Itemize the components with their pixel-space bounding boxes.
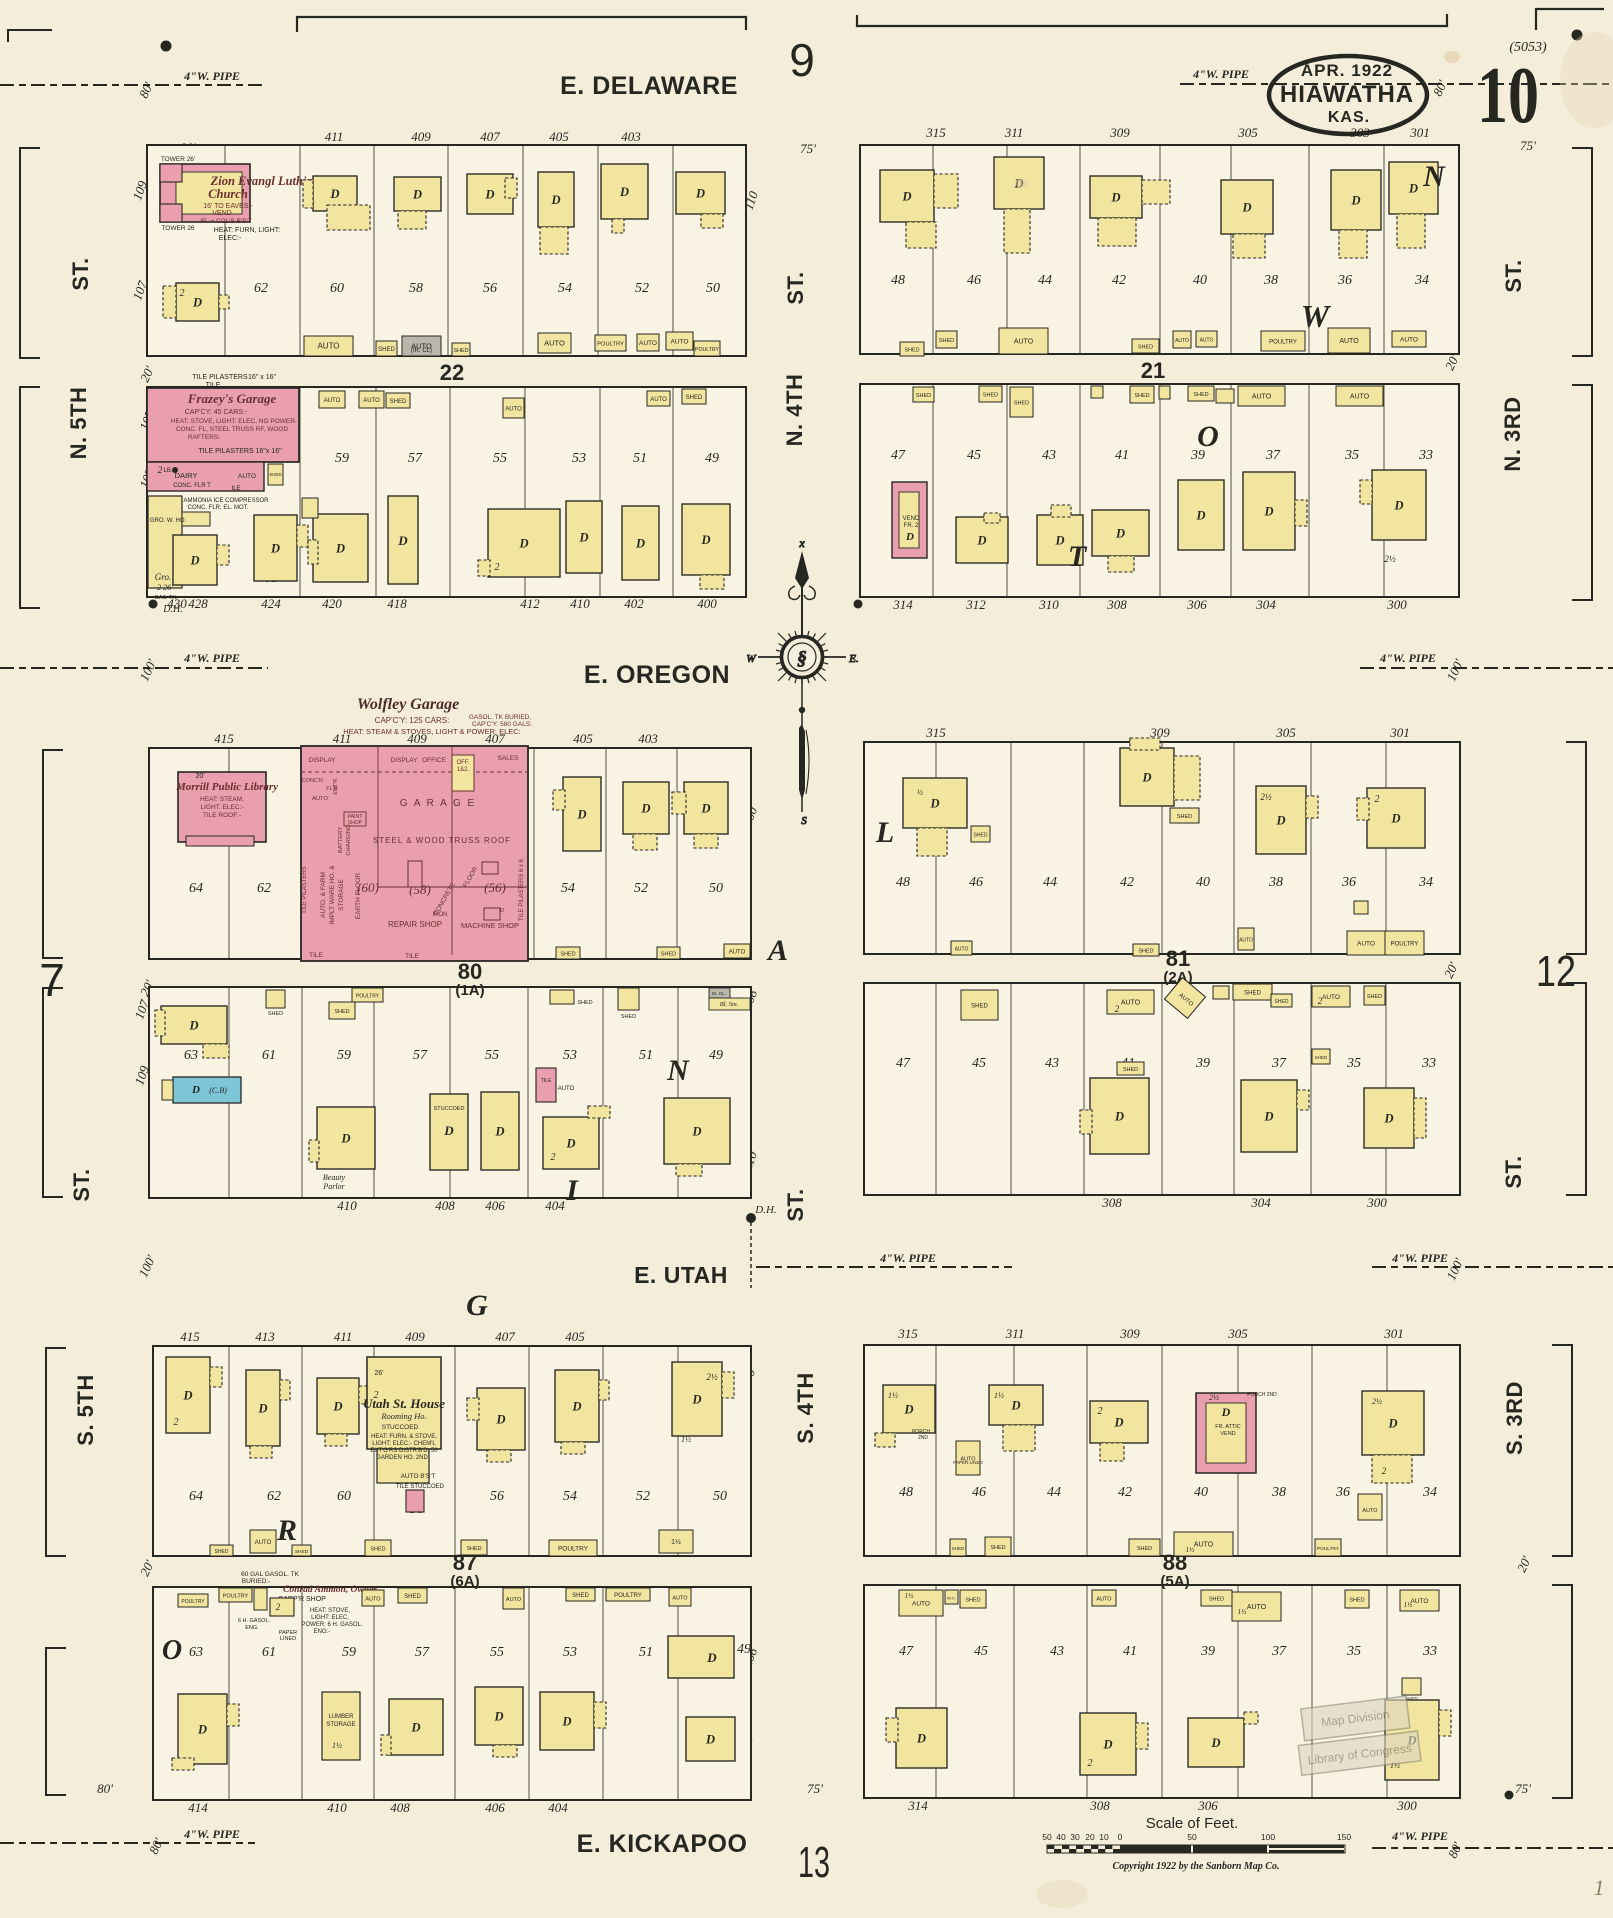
svg-text:SHED: SHED	[939, 338, 954, 344]
svg-text:APR. 1922: APR. 1922	[1301, 61, 1393, 80]
svg-text:10: 10	[1099, 1832, 1109, 1842]
svg-text:ST.: ST.	[1501, 1155, 1526, 1188]
svg-text:SHED: SHED	[621, 1014, 636, 1020]
svg-text:2: 2	[158, 465, 163, 475]
svg-text:O: O	[1197, 420, 1219, 453]
svg-text:HIAWATHA: HIAWATHA	[1280, 81, 1414, 108]
svg-text:D: D	[1390, 812, 1400, 826]
svg-text:AUTO: AUTO	[505, 407, 522, 413]
svg-text:POULTRY: POULTRY	[614, 1593, 642, 1599]
svg-text:315: 315	[897, 1326, 918, 1341]
svg-text:50: 50	[706, 281, 720, 296]
svg-text:301: 301	[1383, 1326, 1404, 1341]
svg-text:N. 5TH: N. 5TH	[66, 387, 91, 460]
svg-text:STORAGE: STORAGE	[326, 1722, 355, 1728]
svg-text:413: 413	[255, 1329, 275, 1344]
svg-text:64: 64	[189, 881, 203, 896]
svg-text:1½: 1½	[681, 1435, 691, 1444]
svg-text:63: 63	[184, 1048, 198, 1063]
svg-text:N: N	[1422, 160, 1446, 193]
svg-text:STORAGE: STORAGE	[338, 879, 345, 911]
svg-text:HEAT: STOVE, LIGHT: ELEC, NO P: HEAT: STOVE, LIGHT: ELEC, NO POWER-	[171, 418, 297, 425]
svg-text:(60): (60)	[357, 880, 379, 895]
svg-text:312: 312	[965, 597, 986, 612]
svg-text:40: 40	[1193, 273, 1207, 288]
svg-text:2: 2	[1088, 1758, 1093, 1769]
svg-text:N. 4TH: N. 4TH	[782, 374, 807, 447]
svg-text:D: D	[1054, 534, 1064, 548]
svg-text:311: 311	[1004, 125, 1024, 140]
svg-text:48: 48	[891, 273, 905, 288]
svg-text:49: 49	[709, 1048, 723, 1063]
svg-text:SHED: SHED	[370, 1547, 385, 1553]
svg-text:4"W. PIPE: 4"W. PIPE	[183, 69, 240, 83]
svg-text:Morrill Public Library: Morrill Public Library	[175, 781, 278, 793]
svg-text:CHARGING: CHARGING	[346, 824, 352, 856]
svg-text:54: 54	[563, 1489, 577, 1504]
svg-text:W: W	[746, 653, 756, 665]
svg-text:407: 407	[480, 129, 500, 144]
svg-text:POULTRY: POULTRY	[181, 1599, 205, 1605]
svg-text:POULTRY: POULTRY	[695, 347, 720, 353]
svg-text:TOWER 26': TOWER 26'	[161, 156, 195, 163]
svg-text:Copyright 1922 by the Sanborn: Copyright 1922 by the Sanborn Map Co.	[1113, 1861, 1280, 1872]
svg-text:W.C.: W.C.	[947, 1596, 956, 1601]
svg-text:D: D	[901, 190, 911, 204]
svg-text:100: 100	[1261, 1832, 1275, 1842]
svg-text:(C.B): (C.B)	[209, 1086, 227, 1095]
svg-text:GAS. TK.: GAS. TK.	[154, 595, 178, 601]
svg-text:O: O	[162, 1635, 182, 1666]
svg-text:42: 42	[1120, 875, 1134, 890]
svg-text:VEND: VEND	[903, 516, 920, 522]
svg-text:AUTO: AUTO	[1411, 1598, 1429, 1605]
svg-text:21: 21	[1141, 358, 1165, 383]
svg-text:(5053): (5053)	[1509, 40, 1547, 55]
svg-text:D: D	[561, 1715, 571, 1729]
svg-text:D: D	[484, 188, 494, 202]
svg-text:60: 60	[330, 281, 344, 296]
svg-text:1½: 1½	[1238, 1608, 1248, 1616]
svg-text:55: 55	[485, 1048, 499, 1063]
svg-text:407: 407	[495, 1329, 515, 1344]
svg-text:SHED: SHED	[686, 395, 703, 401]
svg-text:39: 39	[1195, 1056, 1210, 1071]
svg-text:D: D	[340, 1132, 350, 1146]
svg-text:LINED: LINED	[280, 1636, 296, 1642]
svg-text:A: A	[766, 934, 788, 967]
svg-text:81: 81	[1166, 946, 1190, 971]
svg-text:2: 2	[1098, 1406, 1103, 1417]
svg-text:SHED: SHED	[215, 1549, 229, 1555]
svg-text:36: 36	[1341, 875, 1356, 890]
svg-text:CONC. FLR T: CONC. FLR T	[173, 483, 211, 489]
svg-text:AUTO: AUTO	[671, 339, 689, 346]
svg-text:35: 35	[1346, 1056, 1361, 1071]
svg-text:410: 410	[337, 1198, 357, 1213]
svg-text:D: D	[1114, 1110, 1124, 1124]
svg-text:314: 314	[892, 597, 913, 612]
svg-text:EXT'G'RS DISTR'B'D, 50: EXT'G'RS DISTR'B'D, 50	[370, 1448, 438, 1454]
svg-text:1½: 1½	[888, 1391, 898, 1400]
svg-text:(1A): (1A)	[455, 982, 484, 999]
svg-text:304: 304	[1255, 597, 1276, 612]
svg-text:50: 50	[709, 881, 723, 896]
svg-text:310: 310	[1038, 597, 1059, 612]
svg-text:SHED: SHED	[404, 1594, 421, 1600]
svg-text:AUTO: AUTO	[1014, 339, 1034, 346]
svg-text:SHED: SHED	[1367, 994, 1382, 1000]
svg-text:LB.: LB.	[163, 468, 172, 474]
svg-text:404: 404	[545, 1198, 565, 1213]
svg-text:53: 53	[563, 1048, 577, 1063]
svg-text:ENG.: ENG.	[245, 1625, 259, 1631]
svg-text:306: 306	[1197, 1798, 1218, 1813]
svg-text:TILE: TILE	[309, 952, 323, 959]
svg-text:M. CL.: M. CL.	[712, 991, 726, 997]
svg-text:STUCCOED: STUCCOED	[434, 1106, 465, 1112]
svg-text:OFF.: OFF.	[457, 760, 470, 766]
svg-text:D: D	[571, 1400, 581, 1414]
svg-text:AUTO: AUTO	[1194, 1542, 1214, 1549]
svg-text:D: D	[192, 296, 202, 310]
svg-text:D: D	[332, 1400, 342, 1414]
svg-text:S. 5TH: S. 5TH	[73, 1374, 98, 1445]
svg-text:56: 56	[490, 1489, 504, 1504]
svg-text:54: 54	[561, 881, 575, 896]
svg-text:AUTO: AUTO	[672, 1596, 688, 1602]
svg-text:SHED: SHED	[1244, 991, 1261, 997]
svg-text:D: D	[397, 533, 408, 548]
svg-text:38: 38	[1271, 1485, 1286, 1500]
svg-text:405: 405	[573, 731, 593, 746]
svg-text:4"W. PIPE: 4"W. PIPE	[1391, 1829, 1448, 1843]
svg-text:34: 34	[1418, 875, 1433, 890]
svg-text:D: D	[1102, 1738, 1112, 1752]
svg-text:CONC. FL, STEEL TRUSS RF, WOOD: CONC. FL, STEEL TRUSS RF, WOOD	[176, 426, 289, 433]
svg-text:Rooming Ho.: Rooming Ho.	[380, 1411, 426, 1421]
svg-text:ILE: ILE	[231, 486, 240, 492]
svg-text:16' TO EAVES:-: 16' TO EAVES:-	[203, 203, 253, 210]
svg-text:404: 404	[548, 1800, 568, 1815]
svg-text:D: D	[576, 808, 586, 822]
svg-text:80: 80	[458, 959, 482, 984]
svg-text:HEAT: FURN, LIGHT:: HEAT: FURN, LIGHT:	[214, 227, 280, 234]
svg-text:47: 47	[891, 448, 906, 463]
svg-text:64: 64	[189, 1489, 203, 1504]
svg-text:D: D	[929, 797, 939, 811]
svg-text:E. KICKAPOO: E. KICKAPOO	[577, 1830, 748, 1858]
svg-text:TILE: TILE	[405, 953, 419, 960]
svg-text:D: D	[691, 1393, 701, 1407]
svg-text:GASOL. TK BURIED,: GASOL. TK BURIED,	[469, 714, 532, 721]
svg-text:§: §	[797, 648, 807, 669]
svg-text:1½: 1½	[905, 1592, 915, 1600]
svg-text:420: 420	[322, 596, 342, 611]
svg-text:POWER: 6 H. GASOL.: POWER: 6 H. GASOL.	[301, 1622, 362, 1628]
svg-text:D: D	[410, 1721, 420, 1735]
svg-text:SHED: SHED	[560, 952, 575, 958]
svg-text:D: D	[1113, 1416, 1123, 1430]
svg-text:DISPLAY: DISPLAY	[391, 757, 419, 764]
svg-text:55: 55	[490, 1645, 504, 1660]
svg-text:26': 26'	[374, 1370, 383, 1377]
svg-text:2: 2	[374, 1390, 379, 1401]
svg-text:46: 46	[972, 1485, 986, 1500]
svg-text:4"W. PIPE: 4"W. PIPE	[183, 651, 240, 665]
svg-text:60 GAL GASOL. TK: 60 GAL GASOL. TK	[241, 1571, 299, 1578]
svg-text:(5A): (5A)	[1160, 1573, 1189, 1590]
svg-text:D: D	[335, 542, 345, 556]
svg-text:SHED: SHED	[453, 348, 468, 354]
svg-text:AUTO: AUTO	[1357, 941, 1375, 948]
svg-text:SHED: SHED	[1138, 345, 1153, 351]
svg-text:TILE STUCCOED: TILE STUCCOED	[396, 1484, 445, 1490]
svg-text:HEAT: FURN. & STOVE,: HEAT: FURN. & STOVE,	[371, 1434, 437, 1440]
svg-text:POULTRY: POULTRY	[1269, 340, 1297, 346]
svg-text:62: 62	[267, 1489, 281, 1504]
svg-text:HEAT: STEAM & STOVES, LIGHT &: HEAT: STEAM & STOVES, LIGHT & POWER: ELE…	[343, 727, 521, 736]
svg-text:RAFTERS:: RAFTERS:	[188, 434, 220, 441]
svg-text:35: 35	[1344, 448, 1359, 463]
svg-text:49: 49	[737, 1642, 751, 1657]
svg-text:52: 52	[635, 281, 649, 296]
svg-text:2½: 2½	[1260, 792, 1272, 802]
svg-text:44: 44	[1038, 273, 1052, 288]
svg-text:AUTO: AUTO	[1175, 338, 1189, 344]
svg-text:PORCH 2ND: PORCH 2ND	[1247, 1392, 1277, 1398]
svg-text:406: 406	[485, 1800, 505, 1815]
svg-text:58: 58	[409, 281, 423, 296]
svg-text:57: 57	[408, 451, 423, 466]
svg-text:47: 47	[896, 1056, 911, 1071]
svg-text:52: 52	[634, 881, 648, 896]
svg-text:37: 37	[1265, 448, 1281, 463]
svg-text:DISPLAY: DISPLAY	[309, 757, 337, 764]
svg-text:1&2.: 1&2.	[457, 767, 470, 773]
svg-text:41: 41	[1123, 1644, 1137, 1659]
svg-text:400: 400	[697, 596, 717, 611]
svg-text:D: D	[916, 1732, 926, 1746]
svg-text:308: 308	[1089, 1798, 1110, 1813]
svg-text:415: 415	[214, 731, 234, 746]
svg-text:ST.: ST.	[1501, 259, 1526, 292]
svg-text:D: D	[493, 1710, 503, 1724]
svg-text:75': 75'	[1515, 1781, 1531, 1796]
svg-text:411: 411	[334, 1329, 353, 1344]
svg-text:2: 2	[180, 288, 185, 299]
svg-text:311: 311	[1005, 1326, 1025, 1341]
svg-text:D: D	[635, 537, 645, 551]
svg-text:2: 2	[551, 1152, 556, 1163]
svg-text:AUTO: AUTO	[955, 947, 969, 953]
svg-text:30: 30	[1070, 1832, 1080, 1842]
svg-text:SHED: SHED	[1193, 392, 1208, 398]
svg-text:Frazey's Garage: Frazey's Garage	[187, 391, 277, 406]
svg-text:47: 47	[899, 1644, 914, 1659]
svg-text:4"W. PIPE: 4"W. PIPE	[879, 1251, 936, 1265]
svg-text:(56): (56)	[484, 880, 506, 895]
svg-text:AUTO: AUTO	[365, 1597, 381, 1603]
svg-text:75': 75'	[1520, 138, 1536, 153]
svg-text:HEAT: STEAM,: HEAT: STEAM,	[200, 796, 244, 803]
svg-text:303: 303	[1349, 125, 1370, 140]
svg-text:I: I	[565, 1174, 579, 1207]
svg-text:150: 150	[1337, 1832, 1351, 1842]
svg-text:SHED: SHED	[661, 952, 676, 958]
svg-text:E. DELAWARE: E. DELAWARE	[560, 72, 738, 100]
svg-text:38: 38	[1268, 875, 1283, 890]
svg-text:POULTRY: POULTRY	[597, 342, 624, 348]
svg-text:IRON: IRON	[433, 912, 448, 918]
svg-text:40: 40	[1194, 1485, 1208, 1500]
svg-text:POULTRY: POULTRY	[558, 1546, 589, 1553]
svg-text:PAPER LINED: PAPER LINED	[953, 1460, 983, 1465]
svg-text:304: 304	[1250, 1195, 1271, 1210]
svg-text:2: 2	[276, 1602, 281, 1612]
svg-text:TILE PILASTERS 16"x 16": TILE PILASTERS 16"x 16"	[198, 448, 282, 455]
svg-text:52: 52	[636, 1489, 650, 1504]
svg-text:50: 50	[713, 1489, 727, 1504]
svg-text:D: D	[1241, 201, 1251, 215]
svg-text:409: 409	[405, 1329, 425, 1344]
svg-text:CONC'R.: CONC'R.	[302, 778, 325, 784]
svg-text:42: 42	[1118, 1485, 1132, 1500]
svg-text:½: ½	[917, 788, 923, 797]
svg-text:POULTRY: POULTRY	[1391, 942, 1419, 948]
svg-text:AUTO: AUTO	[1362, 1508, 1378, 1514]
svg-text:38: 38	[1263, 273, 1278, 288]
svg-text:75': 75'	[807, 1781, 823, 1796]
svg-text:AUTO: AUTO	[1400, 337, 1418, 344]
svg-text:415: 415	[180, 1329, 200, 1344]
svg-text:12: 12	[1536, 947, 1576, 996]
svg-text:16" x 16": 16" x 16"	[248, 374, 276, 381]
svg-text:Church: Church	[208, 187, 248, 201]
svg-text:59: 59	[337, 1048, 351, 1063]
svg-text:D.H.: D.H.	[754, 1204, 776, 1216]
svg-text:41: 41	[1115, 448, 1129, 463]
svg-text:D: D	[1010, 1399, 1020, 1413]
svg-text:80': 80'	[97, 1781, 113, 1796]
svg-text:VEND: VEND	[1220, 1431, 1235, 1437]
svg-text:DAIRY: DAIRY	[175, 471, 198, 480]
svg-text:20: 20	[1085, 1832, 1095, 1842]
svg-text:(6A): (6A)	[450, 1573, 479, 1590]
svg-text:309: 309	[1119, 1326, 1140, 1341]
svg-text:40: 40	[1056, 1832, 1066, 1842]
svg-text:D: D	[1195, 509, 1205, 523]
svg-text:AUTO: AUTO	[1096, 1597, 1112, 1603]
svg-text:308: 308	[1106, 597, 1127, 612]
svg-text:D: D	[1275, 814, 1285, 828]
svg-text:IR. + COL'S B'S'T: IR. + COL'S B'S'T	[200, 218, 252, 225]
svg-text:SHED: SHED	[1209, 1597, 1224, 1603]
svg-text:G A R A G E: G A R A G E	[400, 798, 476, 809]
svg-text:Beauty: Beauty	[323, 1173, 346, 1182]
svg-text:(IR. CL): (IR. CL)	[411, 348, 432, 354]
svg-text:4"W. PIPE: 4"W. PIPE	[183, 1827, 240, 1841]
svg-text:D: D	[189, 554, 199, 568]
svg-text:37: 37	[1271, 1056, 1287, 1071]
svg-text:BURIED:-: BURIED:-	[242, 1578, 271, 1585]
svg-text:2: 2	[495, 562, 500, 573]
svg-text:300: 300	[1366, 1195, 1387, 1210]
svg-text:301: 301	[1389, 725, 1410, 740]
svg-text:L: L	[875, 816, 894, 849]
svg-text:0: 0	[1118, 1832, 1123, 1842]
svg-text:409: 409	[411, 129, 431, 144]
svg-text:1: 1	[1594, 1875, 1605, 1900]
svg-text:CONC. FLR; EL. MOT.: CONC. FLR; EL. MOT.	[188, 505, 249, 511]
svg-text:D: D	[329, 187, 339, 201]
svg-text:36: 36	[1335, 1485, 1350, 1500]
svg-text:7: 7	[39, 954, 65, 1006]
svg-text:MACHINE SHOP: MACHINE SHOP	[461, 921, 519, 930]
svg-text:43: 43	[1045, 1056, 1059, 1071]
svg-text:63: 63	[189, 1645, 203, 1660]
svg-text:AUTO: AUTO	[1121, 1000, 1141, 1007]
svg-text:W: W	[1301, 298, 1332, 334]
svg-text:408: 408	[390, 1800, 410, 1815]
svg-text:Bl. Sm.: Bl. Sm.	[720, 1001, 739, 1008]
svg-text:4"W. PIPE: 4"W. PIPE	[1192, 67, 1249, 81]
svg-text:Scale of Feet.: Scale of Feet.	[1146, 1815, 1239, 1832]
svg-text:10: 10	[1477, 52, 1539, 140]
svg-text:48: 48	[896, 875, 910, 890]
svg-text:ST.: ST.	[783, 271, 808, 304]
svg-text:AUTO: AUTO	[324, 398, 341, 404]
svg-text:SHED: SHED	[1134, 393, 1149, 399]
svg-text:2ND: 2ND	[918, 1435, 928, 1441]
svg-text:AUTO: AUTO	[1252, 394, 1272, 401]
svg-text:410: 410	[570, 596, 590, 611]
svg-text:TILE PILASTERS: TILE PILASTERS	[192, 374, 248, 381]
svg-text:51: 51	[639, 1048, 653, 1063]
svg-text:AUTO. & FARM: AUTO. & FARM	[320, 872, 327, 918]
svg-text:51: 51	[639, 1645, 653, 1660]
svg-text:D: D	[1210, 1736, 1220, 1750]
svg-text:33: 33	[1418, 448, 1433, 463]
svg-text:CAP'C'Y: 125 CARS:: CAP'C'Y: 125 CARS:	[375, 716, 450, 725]
svg-text:D: D	[705, 1733, 715, 1747]
svg-text:53: 53	[572, 451, 586, 466]
svg-text:6 H. GASOL.: 6 H. GASOL.	[238, 1618, 271, 1624]
svg-text:N. 3RD: N. 3RD	[1500, 396, 1525, 471]
svg-text:D: D	[691, 1125, 701, 1139]
svg-text:D.H.: D.H.	[162, 604, 182, 615]
svg-text:BATTERY: BATTERY	[338, 827, 344, 853]
svg-text:300: 300	[1396, 1798, 1417, 1813]
svg-text:ST.: ST.	[68, 257, 93, 290]
svg-text:315: 315	[925, 125, 946, 140]
svg-text:40: 40	[1196, 875, 1210, 890]
svg-text:TILE ROOF:-: TILE ROOF:-	[203, 812, 241, 819]
svg-text:35: 35	[1346, 1644, 1361, 1659]
svg-text:AUTO: AUTO	[729, 950, 746, 956]
svg-text:403: 403	[638, 731, 658, 746]
svg-text:LIGHT: ELEC:- CHEM'L: LIGHT: ELEC:- CHEM'L	[372, 1441, 436, 1447]
svg-text:2: 2	[1115, 1004, 1120, 1014]
svg-text:62: 62	[254, 281, 268, 296]
svg-text:305: 305	[1227, 1326, 1248, 1341]
svg-text:E.: E.	[848, 653, 858, 665]
svg-text:ENG:-: ENG:-	[314, 1629, 331, 1635]
svg-text:33: 33	[1422, 1644, 1437, 1659]
svg-text:306: 306	[1186, 597, 1207, 612]
svg-text:309: 309	[1109, 125, 1130, 140]
svg-text:S. 3RD: S. 3RD	[1502, 1381, 1527, 1455]
